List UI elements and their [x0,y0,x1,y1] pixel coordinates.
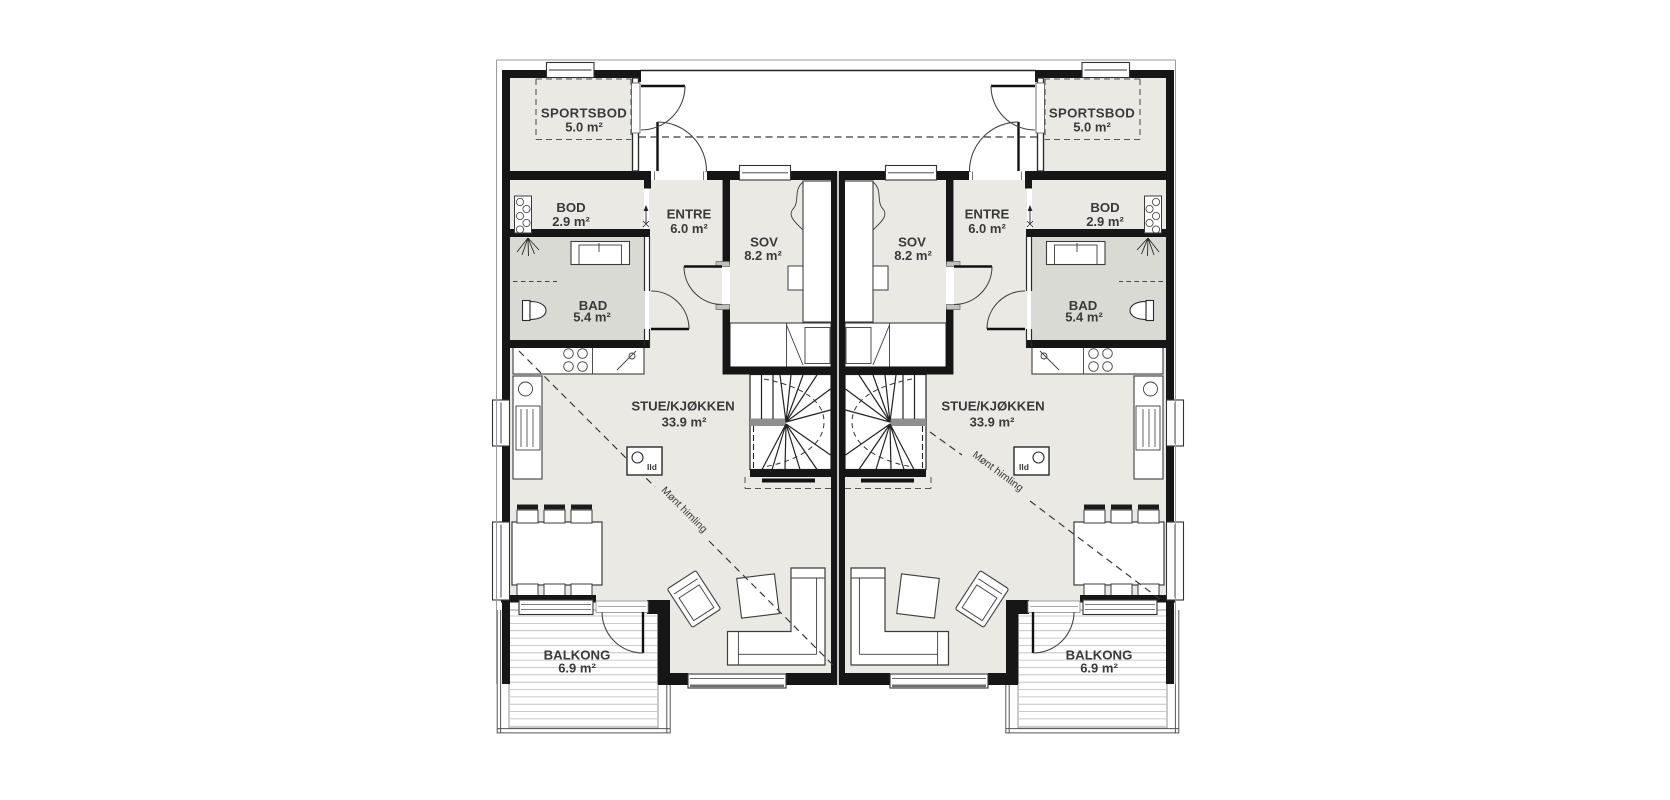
svg-text:BOD: BOD [556,200,585,215]
svg-text:ENTRE: ENTRE [965,207,1010,222]
svg-text:8.2 m²: 8.2 m² [744,248,782,263]
svg-text:8.2 m²: 8.2 m² [894,248,932,263]
svg-text:BOD: BOD [1090,200,1119,215]
svg-text:33.9 m²: 33.9 m² [662,415,707,430]
svg-text:5.0 m²: 5.0 m² [565,120,603,135]
svg-text:6.9 m²: 6.9 m² [1080,661,1118,676]
svg-text:33.9 m²: 33.9 m² [970,415,1015,430]
svg-text:Ild: Ild [647,462,657,472]
svg-text:2.9 m²: 2.9 m² [552,214,590,229]
svg-text:STUE/KJØKKEN: STUE/KJØKKEN [941,399,1044,414]
svg-text:5.4 m²: 5.4 m² [573,310,611,325]
svg-text:STUE/KJØKKEN: STUE/KJØKKEN [631,399,734,414]
svg-text:6.0 m²: 6.0 m² [670,221,708,236]
svg-text:5.0 m²: 5.0 m² [1073,120,1111,135]
svg-text:6.0 m²: 6.0 m² [968,221,1006,236]
svg-text:5.4 m²: 5.4 m² [1065,310,1103,325]
svg-text:SPORTSBOD: SPORTSBOD [1049,106,1135,121]
svg-text:Ild: Ild [1019,462,1029,472]
svg-text:2.9 m²: 2.9 m² [1086,214,1124,229]
svg-text:6.9 m²: 6.9 m² [558,661,596,676]
svg-text:ENTRE: ENTRE [667,207,712,222]
svg-text:SPORTSBOD: SPORTSBOD [541,106,627,121]
